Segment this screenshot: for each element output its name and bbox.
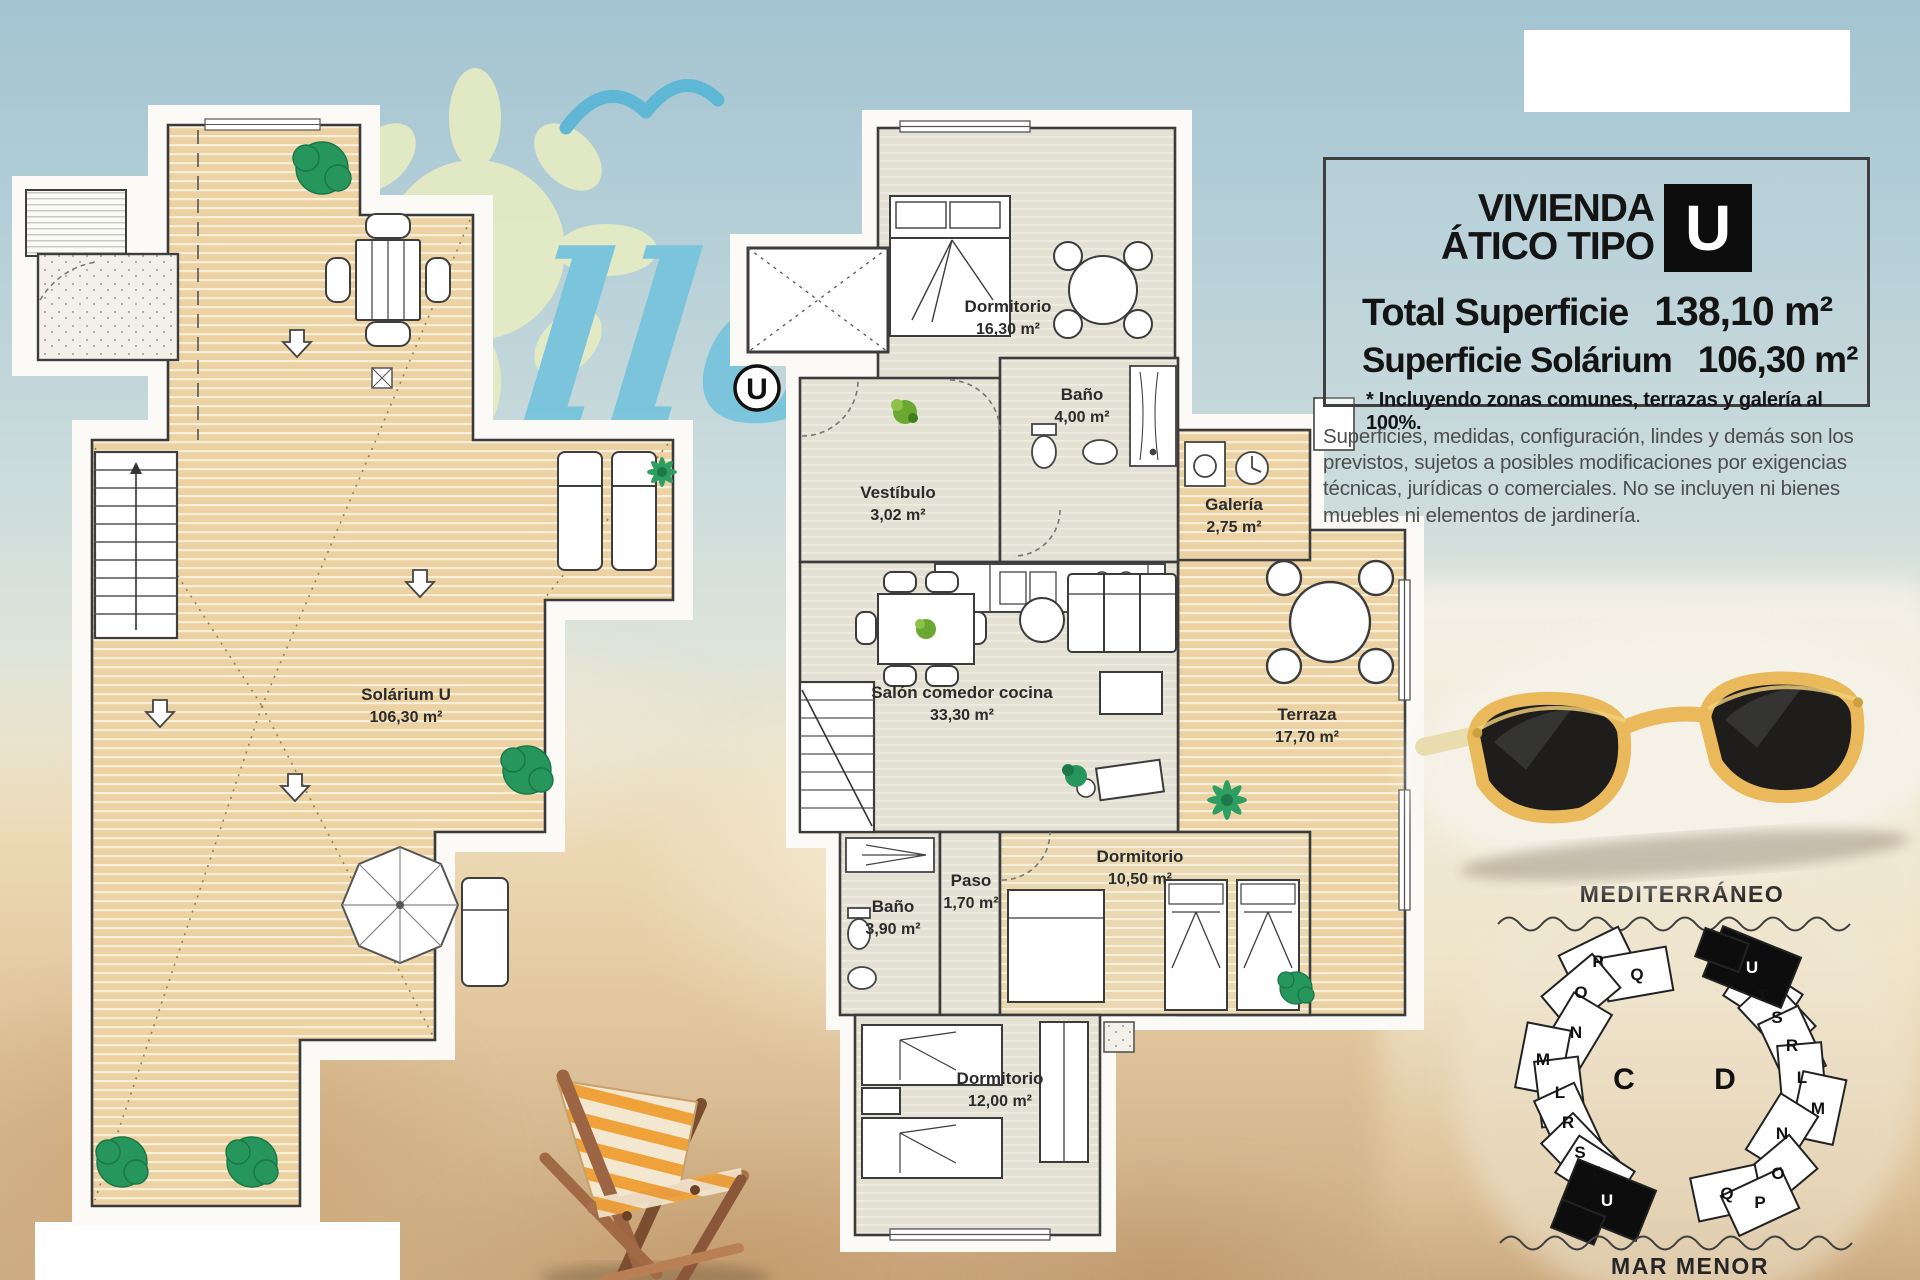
svg-text:L: L [1797, 1068, 1807, 1087]
unit-title-line2: ÁTICO TIPO [1441, 228, 1654, 266]
svg-text:S: S [1771, 1008, 1782, 1027]
stairs [95, 452, 177, 638]
svg-text:U: U [1601, 1191, 1613, 1210]
salon-stairs [800, 682, 874, 832]
elevator-shaft [748, 248, 888, 352]
unit-title-line1: VIVIENDA [1441, 190, 1654, 228]
brochure-page: llo [0, 0, 1920, 1280]
room-label-bano1: Baño [1061, 385, 1104, 404]
sea-label-top: MEDITERRÁNEO [1580, 880, 1785, 907]
room-area-solarium: 106,30 m² [370, 709, 443, 726]
room-area-dorm-main: 16,30 m² [976, 321, 1040, 338]
skylight-square [372, 368, 392, 388]
room-area-paso: 1,70 m² [943, 895, 998, 912]
sea-label-bottom: MAR MENOR [1611, 1253, 1769, 1279]
svg-text:U: U [746, 373, 768, 406]
room-label-terraza: Terraza [1277, 705, 1337, 724]
svg-text:R: R [1786, 1036, 1798, 1055]
room-area-bano1: 4,00 m² [1054, 409, 1109, 426]
seagull-icon [566, 86, 718, 128]
room-area-dorm2: 10,50 m² [1108, 871, 1172, 888]
building-c-label: C [1613, 1063, 1635, 1096]
svg-text:Q: Q [1720, 1184, 1733, 1203]
unit-title: VIVIENDA ÁTICO TIPO [1441, 190, 1654, 266]
room-label-vestibulo: Vestíbulo [860, 483, 936, 502]
room-area-terraza: 17,70 m² [1275, 729, 1339, 746]
building-d-label: D [1714, 1063, 1736, 1096]
total-surface-value: 138,10 m² [1654, 288, 1832, 335]
svg-text:O: O [1574, 983, 1587, 1002]
room-area-bano2: 3,90 m² [865, 921, 920, 938]
svg-text:P: P [1754, 1193, 1765, 1212]
room-label-galeria: Galería [1205, 495, 1263, 514]
window [205, 119, 320, 130]
type-letter-badge: U [1664, 184, 1752, 272]
terraza-palm [1207, 780, 1247, 820]
svg-text:M: M [1811, 1099, 1825, 1118]
annex-terrace-room [38, 254, 178, 360]
room-label-bano2: Baño [872, 897, 915, 916]
room-paso [940, 832, 1000, 1015]
svg-text:T: T [1758, 986, 1769, 1005]
room-label-salon: Salón comedor cocina [871, 683, 1053, 702]
solarium-surface-value: 106,30 m² [1698, 339, 1858, 381]
room-label-solarium: Solárium U [361, 685, 451, 704]
legal-disclaimer: Superficies, medidas, configuración, lin… [1323, 424, 1885, 529]
bush [96, 1137, 148, 1187]
svg-text:S: S [1574, 1143, 1585, 1162]
svg-text:O: O [1771, 1164, 1784, 1183]
room-label-dorm3: Dormitorio [957, 1069, 1044, 1088]
apartment-plan: U [730, 110, 1424, 1252]
svg-text:P: P [1592, 952, 1603, 971]
room-label-dorm-main: Dormitorio [965, 297, 1052, 316]
site-map: MEDITERRÁNEO [1455, 850, 1915, 1280]
svg-text:U: U [1746, 958, 1758, 977]
svg-text:N: N [1776, 1124, 1788, 1143]
unit-marker: U [735, 366, 779, 410]
solarium-surface-label: Superficie Solárium [1362, 341, 1672, 381]
room-area-galeria: 2,75 m² [1206, 519, 1261, 536]
round-table-chairs [1054, 242, 1152, 338]
svg-text:M: M [1536, 1050, 1550, 1069]
sunglasses-photo [1402, 614, 1920, 900]
annex-louver-room [26, 190, 126, 256]
room-area-salon: 33,30 m² [930, 707, 994, 724]
room-area-dorm3: 12,00 m² [968, 1093, 1032, 1110]
balcony-square [1104, 1022, 1134, 1052]
room-label-dorm2: Dormitorio [1097, 847, 1184, 866]
svg-text:N: N [1570, 1023, 1582, 1042]
room-label-paso: Paso [951, 871, 992, 890]
svg-text:T: T [1590, 1163, 1601, 1182]
flower-plant [647, 457, 677, 487]
svg-text:Q: Q [1630, 965, 1643, 984]
svg-text:L: L [1555, 1083, 1565, 1102]
deck-chair-photo [540, 1076, 770, 1280]
info-panel: VIVIENDA ÁTICO TIPO U Total Superficie 1… [1323, 157, 1870, 407]
svg-text:R: R [1562, 1113, 1574, 1132]
bush [226, 1137, 278, 1187]
total-surface-label: Total Superficie [1362, 292, 1628, 335]
room-area-vestibulo: 3,02 m² [870, 507, 925, 524]
